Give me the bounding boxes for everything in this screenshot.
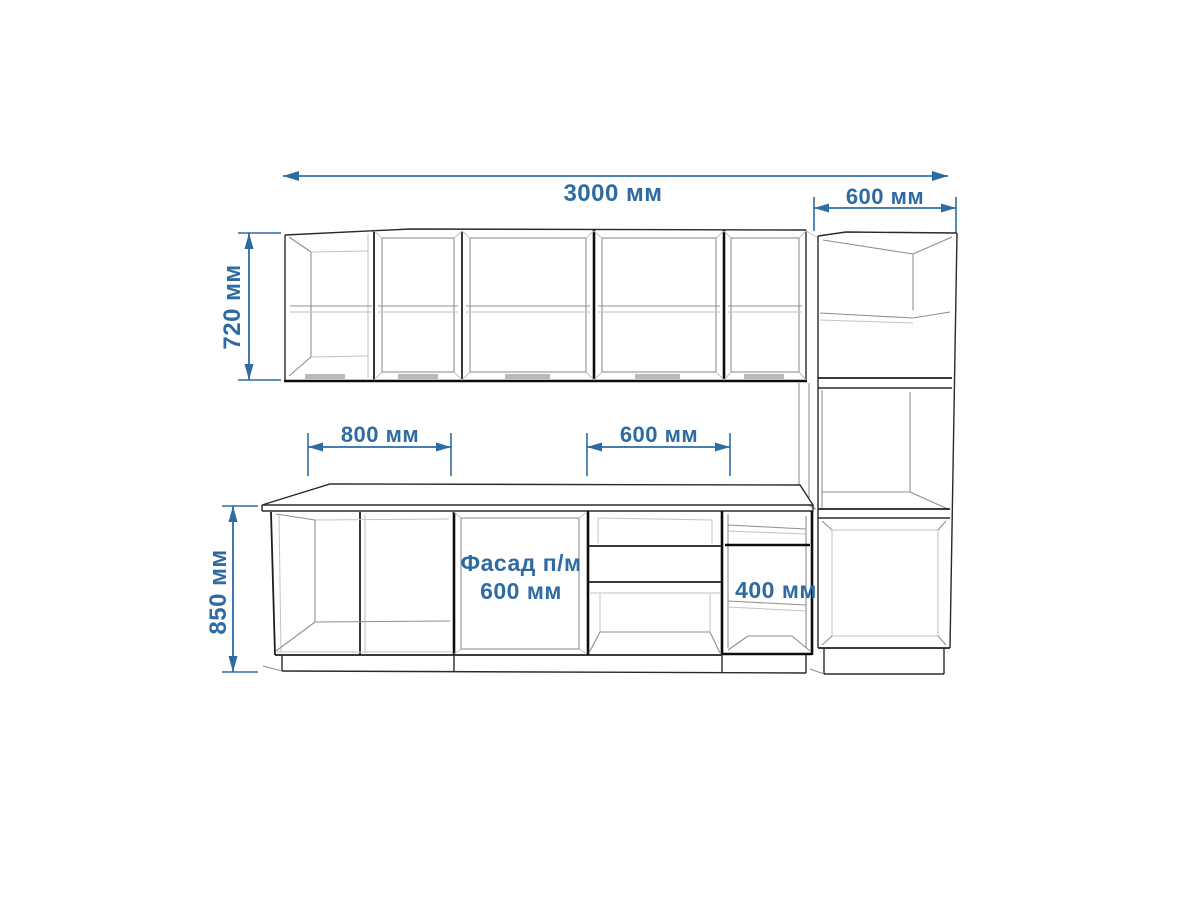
arrowhead-down [229,656,238,672]
dimension-total-width-label: 3000 мм [563,180,662,207]
drawing-line [913,237,952,254]
arrowhead-up [245,233,254,249]
drawing-line [820,320,913,323]
base-cabinet-drawers [589,518,721,653]
tall-cabinet-bottom-box [818,521,950,648]
facade-label-line1: Фасад п/м [460,550,581,576]
wall-cabinet-2-door [374,231,462,380]
drawing-line [910,492,948,509]
drawing-line [810,669,824,674]
drawing-line [311,251,368,252]
wall-cabinet-5-door [724,231,806,380]
tall-unit-side-panel [799,231,818,509]
drawing-line [731,238,799,372]
drawing-line [589,632,600,653]
countertop [262,484,813,511]
facade-label-line2: 600 мм [480,578,562,604]
drawing-line [382,238,454,372]
drawing-line [950,233,957,648]
drawing-line [315,621,450,622]
dimension-base-cabinet-height-label: 850 мм [205,549,232,634]
drawing-line [282,671,806,673]
dimension-wall-cabinet-height: 720 мм [219,233,281,380]
wall-cabinet-4-door [594,231,724,380]
drawing-line [806,231,818,238]
base-cabinet-row: Фасад п/м 600 мм 400 мм [263,511,817,673]
drawing-line [820,313,913,318]
base-cabinet-facade-600: Фасад п/м 600 мм [454,512,587,654]
drawing-line [263,666,282,671]
tall-cabinet-niche [818,390,950,518]
drawing-line [374,372,382,380]
handle-strip [398,374,438,379]
drawing-line [289,357,311,376]
arrowhead-left [283,171,299,181]
drawing-line [276,514,315,520]
drawing-line [285,229,806,235]
drawing-line [728,531,806,534]
drawing-line [462,372,470,380]
arrowhead-up [229,506,238,522]
arrowhead-left [814,204,829,213]
tall-cabinet-top-box [818,237,952,388]
dimension-base-cabinet-800-label: 800 мм [341,422,419,447]
handle-strip [305,374,345,379]
drawing-line [579,512,587,518]
drawing-line [311,356,368,357]
handle-strip [505,374,550,379]
drawing-line [832,530,938,636]
drawing-line [271,512,275,655]
dimension-base-cabinet-height: 850 мм [205,506,258,672]
arrowhead-right [932,171,948,181]
dimension-base-cabinet-600: 600 мм [587,422,730,476]
dimension-tall-unit-width-label: 600 мм [846,184,924,209]
drawing-line [799,372,806,380]
arrowhead-right [941,204,956,213]
tall-cabinet [810,232,957,674]
drawing-line [276,622,315,651]
base-cabinet-shelf-400: 400 мм [725,514,817,651]
wall-cabinet-1-interior [289,234,372,378]
drawing-line [818,232,957,236]
arrowhead-down [245,364,254,380]
kitchen-elevation-drawing: 3000 мм 600 мм 720 мм 850 мм 800 мм [0,0,1201,900]
drawing-line [279,514,281,652]
drawing-line [728,636,748,650]
drawing-line [454,372,462,380]
handle-strip [744,374,784,379]
drawing-line [938,636,946,645]
drawing-line [799,231,806,238]
drawing-line [823,240,913,254]
drawing-line [822,636,832,645]
drawing-line [470,238,586,372]
drawing-line [728,607,806,611]
drawing-line [822,521,832,530]
drawing-line [913,312,950,318]
tall-cabinet-plinth [810,648,944,674]
drawing-line [374,231,382,238]
drawing-line [602,238,716,372]
base-cabinet-800-interior [276,514,452,652]
drawing-line [938,521,946,530]
drawing-line [710,632,720,653]
arrowhead-right [715,443,730,452]
drawing-line [315,519,449,520]
dimension-base-cabinet-600-label: 600 мм [620,422,698,447]
drawing-line [728,525,806,529]
shelf-cabinet-label: 400 мм [735,577,817,603]
arrowhead-left [587,443,602,452]
dimension-wall-cabinet-height-label: 720 мм [219,264,246,349]
drawing-line [598,518,712,520]
drawing-line [289,237,311,252]
dimension-base-cabinet-800: 800 мм [308,422,451,476]
drawing-line [262,484,813,505]
arrowhead-right [436,443,451,452]
drawing-line [454,231,462,238]
wall-cabinet-row [284,229,807,381]
drawing-line [462,231,470,238]
base-plinth [263,655,806,673]
drawing-canvas: 3000 мм 600 мм 720 мм 850 мм 800 мм [0,0,1201,900]
handle-strip [635,374,680,379]
drawing-line [579,649,587,654]
dimension-tall-unit-width: 600 мм [814,184,956,233]
wall-cabinet-3-door [462,231,594,380]
drawing-line [792,636,810,651]
arrowhead-left [308,443,323,452]
